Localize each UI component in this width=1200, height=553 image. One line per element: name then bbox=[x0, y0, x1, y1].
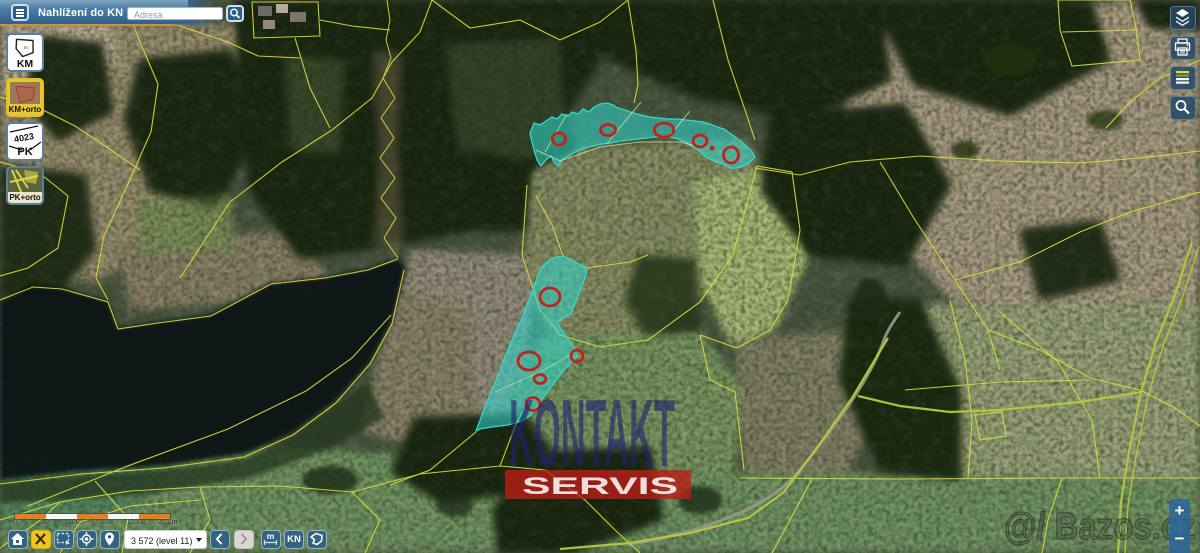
svg-text:4023: 4023 bbox=[13, 131, 34, 144]
svg-text:@/ Bazos.cz: @/ Bazos.cz bbox=[1004, 506, 1196, 548]
svg-text:PK: PK bbox=[17, 146, 32, 158]
svg-text:KM+orto: KM+orto bbox=[9, 105, 42, 114]
svg-text:PK+orto: PK+orto bbox=[9, 193, 40, 202]
svg-text:KM: KM bbox=[17, 58, 34, 70]
svg-text:SERVIS: SERVIS bbox=[522, 473, 678, 500]
svg-text:m: m bbox=[24, 45, 28, 50]
svg-text:m: m bbox=[267, 531, 275, 541]
